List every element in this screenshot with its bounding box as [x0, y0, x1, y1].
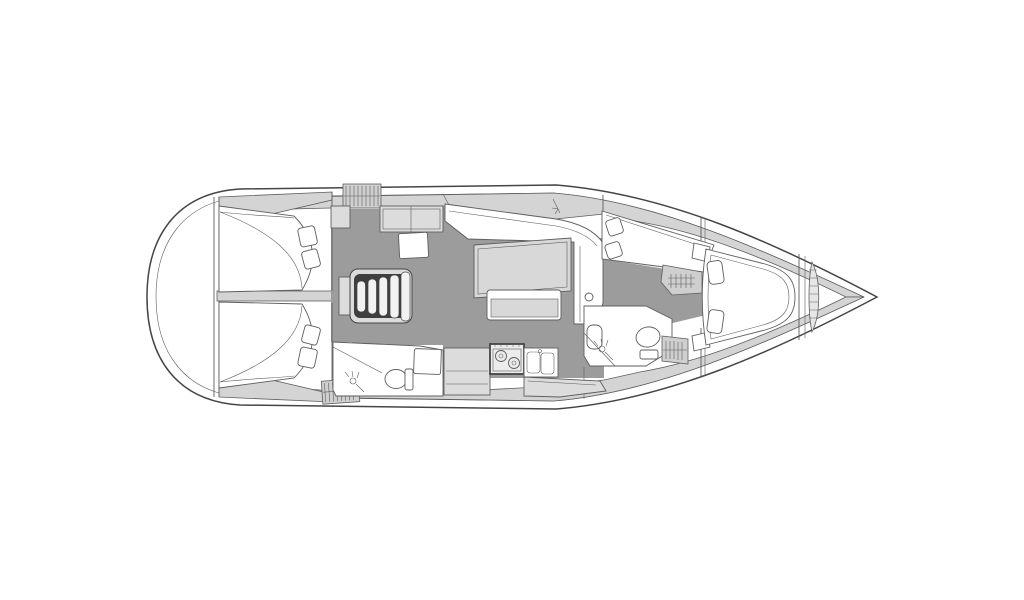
floor-hatch-panel	[398, 232, 428, 258]
aft-cabin-divider	[217, 291, 332, 301]
salon-table	[474, 238, 571, 298]
aft-head	[333, 342, 443, 396]
forward-head-sink	[587, 325, 602, 349]
companionway-steps	[339, 269, 412, 323]
bow-pillow-1	[707, 260, 725, 285]
aft-head-shower-pan	[414, 349, 442, 375]
stove	[490, 344, 524, 374]
boat-floor-plan-canvas	[0, 0, 1024, 600]
forward-head-toilet-tank	[640, 350, 658, 359]
step-2	[368, 279, 377, 314]
aft-port-pillow-1	[297, 225, 318, 247]
aft-head-toilet-tank	[405, 369, 413, 390]
salon-bench-cushion	[491, 299, 558, 317]
step-top	[401, 272, 410, 321]
aft-head-toilet	[385, 370, 407, 389]
galley-counter	[444, 348, 490, 395]
step-4	[390, 275, 399, 318]
cockpit-locker-hatch-port	[343, 184, 381, 208]
bow-pillow-2	[706, 309, 724, 334]
floor-companionway-left	[331, 209, 352, 342]
forward-head-locker-hatch	[662, 336, 688, 364]
aft-starboard-pillow-1	[297, 347, 318, 369]
salon-cabinet	[380, 206, 443, 232]
boat-floor-plan	[0, 0, 1024, 600]
step-1	[357, 281, 366, 312]
salon-locker-small	[331, 206, 350, 228]
step-3	[379, 277, 388, 316]
